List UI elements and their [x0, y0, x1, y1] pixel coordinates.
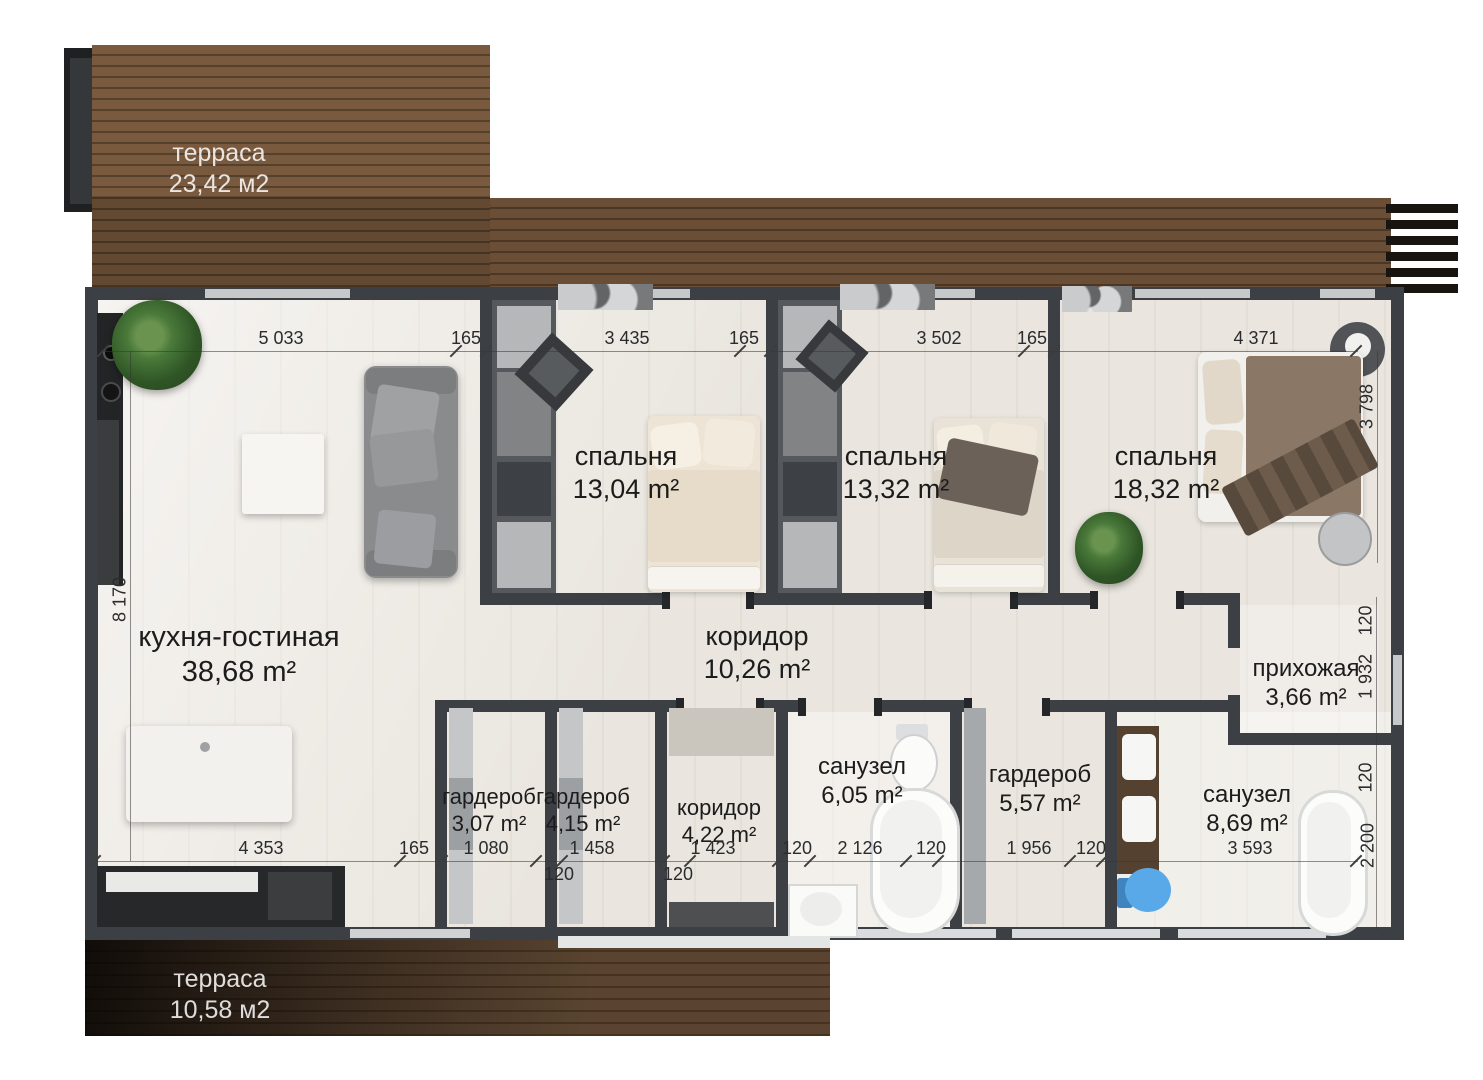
- room-area: 3,66 m²: [1253, 683, 1360, 712]
- room-area: 6,05 m²: [818, 781, 906, 810]
- closet-shelf: [783, 522, 837, 588]
- terrace-top-shadow: [92, 196, 490, 287]
- room-area: 3,07 m²: [442, 811, 536, 838]
- door-jamb: [798, 698, 806, 716]
- door-jamb: [1176, 591, 1184, 609]
- terrace-name: терраса: [169, 138, 270, 169]
- room-label-bathroom2: санузел 8,69 m²: [1203, 780, 1291, 839]
- dim-bottom-0: 4 353: [238, 838, 283, 859]
- dim-bottom-5: 120: [782, 838, 812, 859]
- terrace-name: терраса: [170, 964, 271, 995]
- bed-pillow: [702, 418, 757, 469]
- dim-top-4: 3 502: [916, 328, 961, 349]
- wardrobe3-shelving: [964, 708, 986, 924]
- corridor2-cabinet: [669, 708, 774, 756]
- dim-top-3: 165: [729, 328, 759, 349]
- door-jamb: [1010, 591, 1018, 609]
- pergola-comb-bar: [1386, 268, 1458, 277]
- terrace-area: 10,58 м2: [170, 995, 271, 1026]
- dim-top-5: 165: [1017, 328, 1047, 349]
- dim-line-top: [103, 351, 1358, 352]
- room-name: коридор: [704, 620, 811, 653]
- bathtub-inner: [880, 800, 942, 918]
- kitchen-island: [126, 726, 292, 822]
- sofa-cushion: [373, 509, 436, 569]
- pergola-comb-bar: [1386, 236, 1458, 245]
- dim-bottom-2: 1 080: [463, 838, 508, 859]
- room-label-corridor-main: коридор 10,26 m²: [704, 620, 811, 686]
- sofa-cushion: [369, 428, 439, 487]
- wardrobe2-shelf-box: [559, 708, 583, 778]
- sink-basin: [800, 892, 842, 926]
- pergola-comb-bar: [1386, 220, 1458, 229]
- dim-left-0: 8 170: [110, 560, 131, 640]
- coffee-table: [242, 434, 324, 514]
- room-label-bedroom3: спальня 18,32 m²: [1113, 440, 1220, 506]
- dim-top-1: 165: [451, 328, 481, 349]
- wall-wardrobe3-right: [1105, 700, 1117, 927]
- room-area: 10,26 m²: [704, 653, 811, 686]
- room-label-wardrobe1: гардероб 3,07 m²: [442, 784, 536, 838]
- pergola-strip-shadow: [490, 198, 1391, 287]
- toilet-blue: [1125, 868, 1171, 912]
- wall-exterior-right: [1391, 287, 1404, 940]
- bed-pillow: [1202, 359, 1244, 425]
- dim-right-col-3: 2 200: [1358, 811, 1379, 881]
- closet-shelf: [783, 462, 837, 516]
- dim-top-2: 3 435: [604, 328, 649, 349]
- window: [1135, 289, 1250, 298]
- room-area: 4,15 m²: [536, 811, 630, 838]
- console-top: [106, 872, 258, 892]
- pergola-comb-bar: [1386, 204, 1458, 213]
- room-name: кухня-гостиная: [138, 620, 339, 655]
- room-label-bathroom1: санузел 6,05 m²: [818, 752, 906, 811]
- room-label-wardrobe2: гардероб 4,15 m²: [536, 784, 630, 838]
- room-area: 8,69 m²: [1203, 809, 1291, 838]
- dim-bottom-sub-0: 120: [544, 864, 574, 885]
- room-name: спальня: [573, 440, 680, 473]
- flower-decor: [840, 284, 935, 310]
- dim-bottom-3: 1 458: [569, 838, 614, 859]
- floor-plan: терраса 23,42 м2: [0, 0, 1483, 1080]
- dim-top-0: 5 033: [258, 328, 303, 349]
- room-area: 13,32 m²: [843, 473, 950, 506]
- console-item: [268, 872, 332, 920]
- terrace-step: [558, 936, 830, 948]
- wall-living-bedroom1: [480, 287, 492, 605]
- dim-bottom-8: 1 956: [1006, 838, 1051, 859]
- room-name: санузел: [818, 752, 906, 781]
- window: [1320, 289, 1375, 298]
- window: [1012, 929, 1160, 938]
- vanity-sink: [1122, 734, 1156, 780]
- dim-bottom-7: 120: [916, 838, 946, 859]
- dim-right-bed-0: 3 798: [1357, 367, 1378, 447]
- bed-foot: [648, 566, 760, 589]
- door-jamb: [662, 591, 670, 609]
- room-name: коридор: [677, 795, 761, 822]
- window: [1178, 929, 1326, 938]
- room-area: 5,57 m²: [989, 789, 1091, 818]
- vanity-sink: [1122, 796, 1156, 842]
- room-area: 18,32 m²: [1113, 473, 1220, 506]
- wall-bedroom1-bedroom2: [766, 287, 778, 605]
- door-jamb: [924, 591, 932, 609]
- room-area: 13,04 m²: [573, 473, 680, 506]
- dim-line-bottom: [95, 861, 1358, 862]
- wall-corridor-top: [748, 593, 930, 605]
- room-name: гардероб: [536, 784, 630, 811]
- dim-bottom-sub-1: 120: [663, 864, 693, 885]
- wall-hallway-bottom: [1228, 733, 1391, 745]
- plant: [1075, 512, 1143, 584]
- room-label-kitchen-living: кухня-гостиная 38,68 m²: [138, 620, 339, 691]
- room-name: прихожая: [1253, 654, 1360, 683]
- room-label-bedroom1: спальня 13,04 m²: [573, 440, 680, 506]
- room-name: гардероб: [989, 760, 1091, 789]
- dim-top-6: 4 371: [1233, 328, 1278, 349]
- pergola-comb-bar: [1386, 252, 1458, 261]
- wall-corridor-top: [480, 593, 668, 605]
- room-name: спальня: [843, 440, 950, 473]
- terrace-area: 23,42 м2: [169, 169, 270, 200]
- kitchen-hob: [101, 382, 121, 402]
- closet-shelf: [497, 462, 551, 516]
- door-jamb: [1042, 698, 1050, 716]
- dim-bottom-4: 1 423: [690, 838, 735, 859]
- dim-right-col-1: 1 932: [1356, 642, 1377, 712]
- door-jamb: [746, 591, 754, 609]
- closet-shelf: [497, 522, 551, 588]
- island-faucet: [200, 742, 210, 752]
- window: [350, 929, 470, 938]
- room-name: гардероб: [442, 784, 536, 811]
- wall-corridor2-right: [776, 700, 788, 927]
- room-label-bedroom2: спальня 13,32 m²: [843, 440, 950, 506]
- bathtub-inner: [1307, 802, 1351, 918]
- side-table: [1318, 512, 1372, 566]
- wardrobe1-shelf-box: [449, 708, 473, 778]
- flower-decor: [1062, 286, 1132, 312]
- flower-decor: [558, 284, 653, 310]
- terrace-top-label: терраса 23,42 м2: [169, 138, 270, 199]
- door-jamb: [1090, 591, 1098, 609]
- room-name: спальня: [1113, 440, 1220, 473]
- wall-bedroom2-bedroom3: [1048, 287, 1060, 605]
- dim-bottom-6: 2 126: [837, 838, 882, 859]
- door-jamb: [874, 698, 882, 716]
- terrace-bottom-label: терраса 10,58 м2: [170, 964, 271, 1025]
- room-label-wardrobe3: гардероб 5,57 m²: [989, 760, 1091, 819]
- window: [1393, 655, 1402, 725]
- wall-bathroom2-top: [1117, 700, 1228, 712]
- window: [205, 289, 350, 298]
- room-label-hallway: прихожая 3,66 m²: [1253, 654, 1360, 713]
- dim-right-col-2: 120: [1356, 748, 1377, 808]
- plant: [112, 300, 202, 390]
- terrace-top-planter-inner: [70, 58, 92, 204]
- dim-bottom-9: 120: [1076, 838, 1106, 859]
- dim-bottom-1: 165: [399, 838, 429, 859]
- corridor2-doorway: [669, 902, 774, 927]
- wall-wardrobe2-right: [655, 700, 667, 927]
- bed-foot: [934, 564, 1044, 587]
- dim-bottom-10: 3 593: [1227, 838, 1272, 859]
- wall-hallway-left: [1228, 593, 1240, 648]
- wall-corridor-top: [1012, 593, 1096, 605]
- room-name: санузел: [1203, 780, 1291, 809]
- room-area: 38,68 m²: [138, 655, 339, 690]
